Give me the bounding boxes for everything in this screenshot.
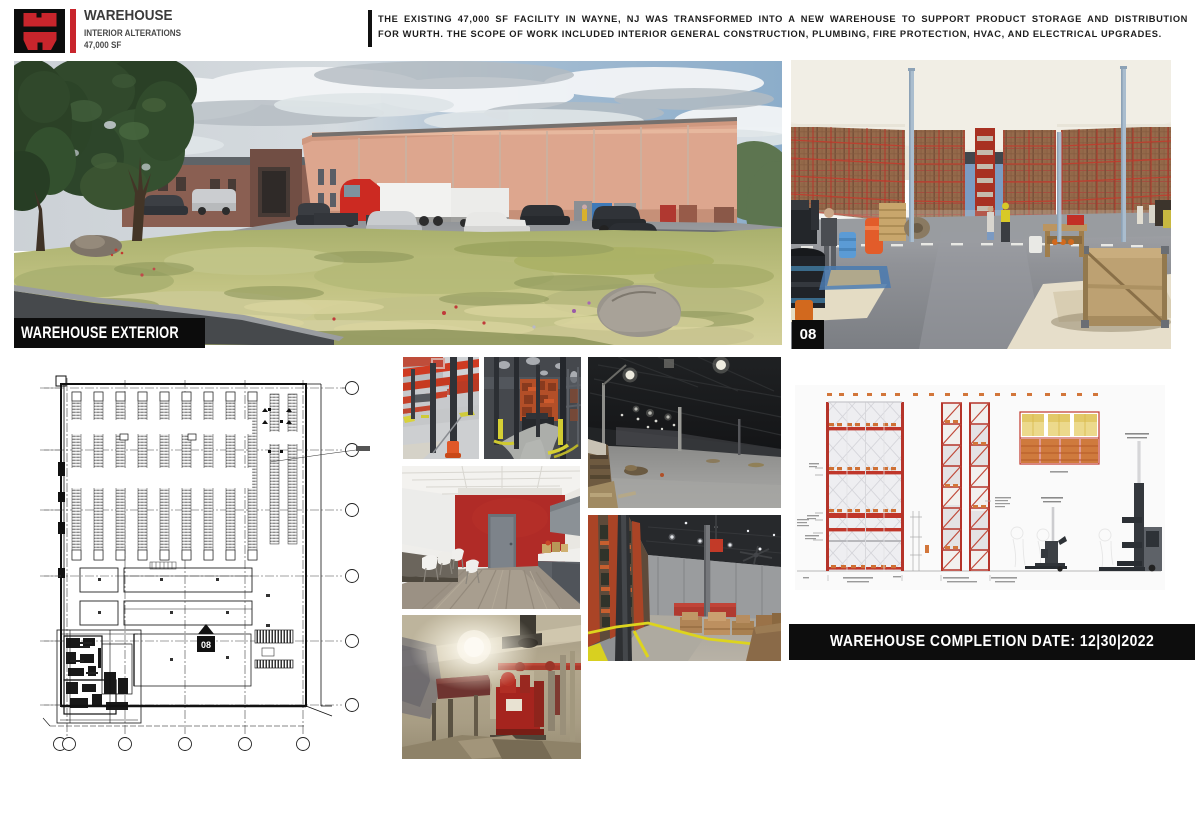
svg-text:08: 08: [201, 640, 211, 650]
